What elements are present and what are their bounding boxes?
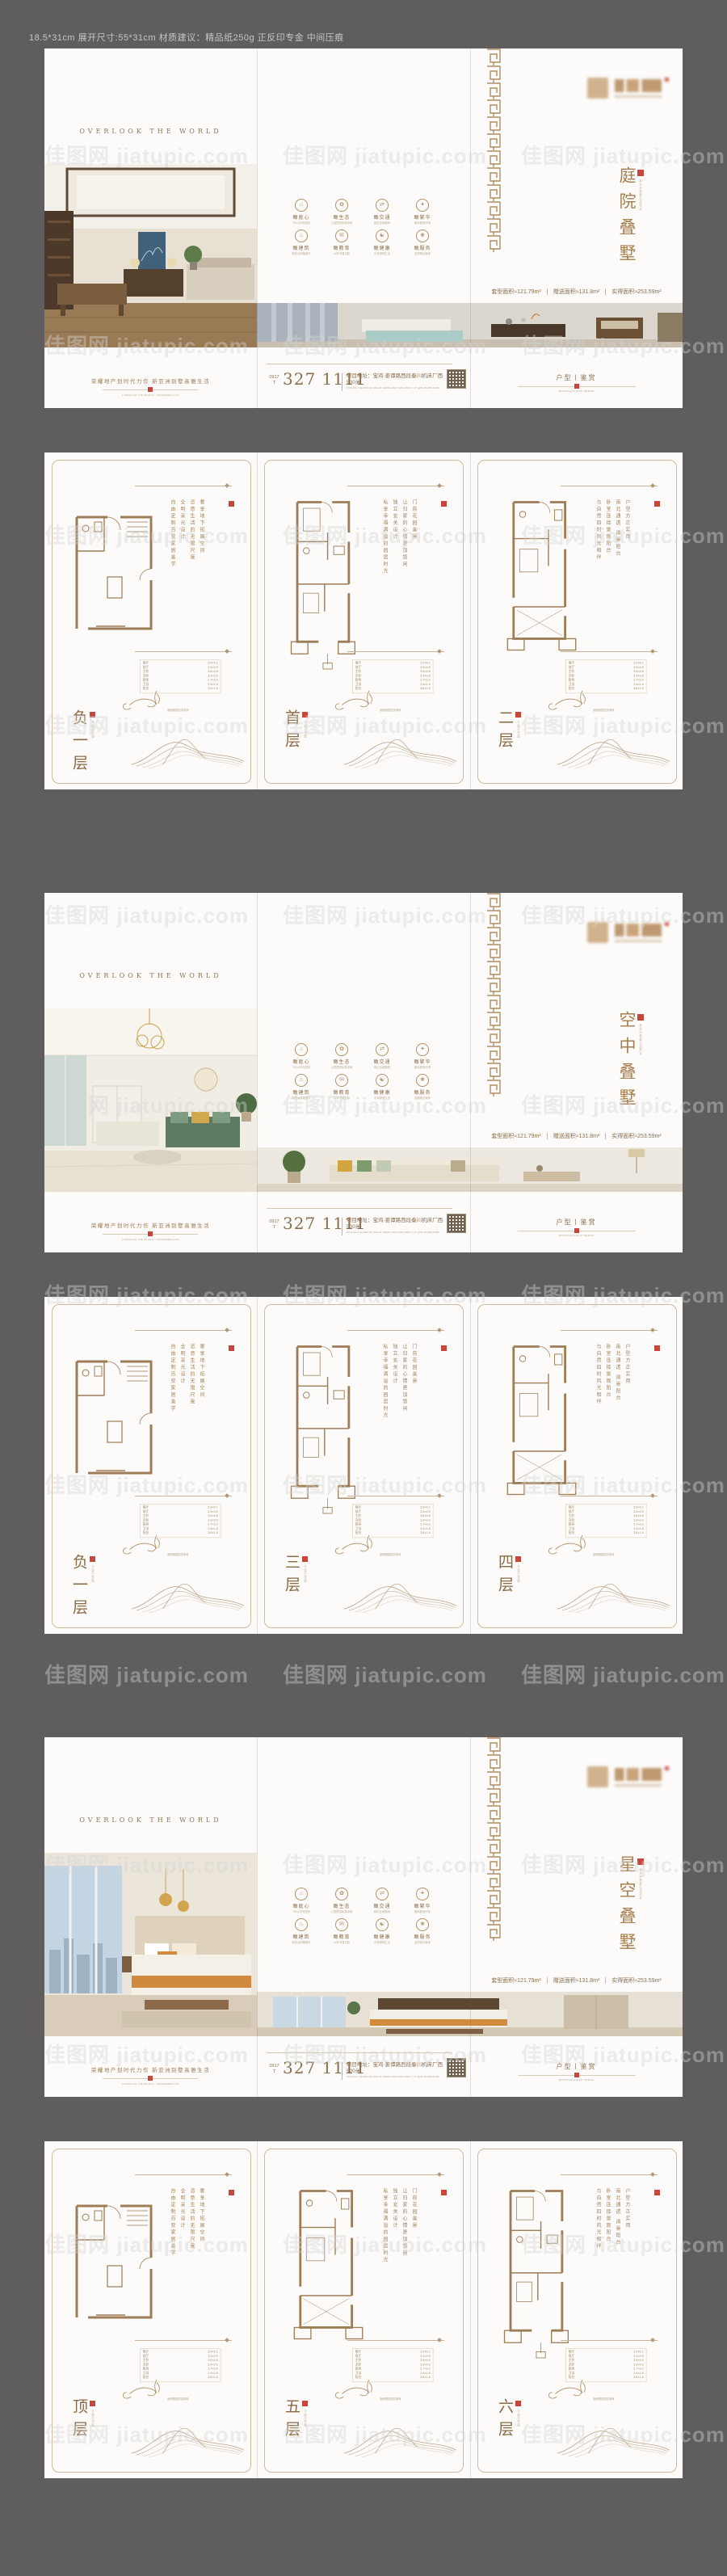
floorplan-spread: 奢享地下拓展空间恣意生活的无限尺度全明采光设计自由定制百变家居美学客厅3.9×5… xyxy=(44,1297,683,1634)
feature-label: 瞰建筑 xyxy=(281,1933,321,1940)
floor-label: 六层 xyxy=(494,2398,516,2476)
poem-seal xyxy=(229,2190,234,2195)
feature-sub: 公园里的私属领地 xyxy=(330,1909,353,1913)
feature-icon: ⌂ xyxy=(295,1888,308,1900)
feature-sub: 醇熟配套环绕 xyxy=(411,221,434,225)
footer-section-label: 户型丨鉴赏 xyxy=(470,1218,683,1227)
title-caption: 新亚洲叠墅生活范本 xyxy=(638,179,642,212)
area-separator xyxy=(605,1977,606,1984)
logo-red-dot xyxy=(665,1766,669,1770)
poem-column: 独立玄关设计 xyxy=(389,1344,399,1488)
footer-english: APPRECIATION OF HUXING xyxy=(518,1235,635,1237)
poem-column: 私享幸福满溢的园居时光 xyxy=(380,1344,389,1488)
feature-label: 瞰庭心 xyxy=(281,1058,321,1065)
bottom-rule xyxy=(135,1496,232,1496)
qr-code xyxy=(447,369,466,389)
watermark: 佳图网 jiatupic.com xyxy=(44,1659,249,1689)
panel-poem: 门前花园美景让归家的心情更加悠闲独立玄关设计私享幸福满溢的园居时光 xyxy=(380,1344,418,1488)
project-address-english: PROJECT ADDRESS: BAOJI JIANGTAN ROAD WES… xyxy=(347,1231,400,1234)
floor-label: 首层 xyxy=(281,709,303,787)
room-size: 3.6×1.5 xyxy=(420,1531,431,1535)
panel-poem: 户型方正实用南北通透 阔景阳台卧室连接景观阳台与自然四时风光相伴 xyxy=(593,499,632,643)
feature-sub: 乐享颐养生活 xyxy=(371,251,393,255)
poem-seal xyxy=(654,1345,660,1351)
poem-column: 南北通透 阔景阳台 xyxy=(612,1344,622,1488)
feature-icon: ✿ xyxy=(335,199,348,212)
overlook-heading: OVERLOOK THE WORLD xyxy=(44,1816,257,1824)
fold-line xyxy=(470,2141,471,2478)
cloud-motif xyxy=(548,1533,595,1555)
floor-caption: 平面示意图 xyxy=(303,1565,307,1583)
poem-column: 卧室连接景观阳台 xyxy=(603,499,612,643)
fold-line xyxy=(257,1737,258,2097)
room-size: 3.6×1.5 xyxy=(420,687,431,691)
top-rule xyxy=(135,486,232,486)
bottom-rule xyxy=(347,1496,444,1496)
interior-photo xyxy=(44,1853,257,2036)
bottom-rule xyxy=(135,651,232,652)
floorplan-drawing xyxy=(61,2183,166,2341)
feature-sub: 750㎡中央园林 xyxy=(290,1065,313,1069)
contact-separator xyxy=(342,2062,342,2080)
phone-area-code: 0917T xyxy=(268,375,280,386)
phone-t-line: T xyxy=(268,2069,280,2075)
panel-poem: 户型方正实用南北通透 阔景阳台卧室连接景观阳台与自然四时风光相伴 xyxy=(593,2188,632,2332)
feature-icon: ❀ xyxy=(416,1918,429,1931)
feature-item: ⇄瞰交通畅达全城路网 xyxy=(362,1888,402,1917)
top-rule xyxy=(561,2174,658,2175)
room-size: 3.6×1.5 xyxy=(208,1531,218,1535)
feature-icon: ♨ xyxy=(295,229,308,242)
bottom-rule xyxy=(135,2340,232,2341)
feature-item: ♨瞰建筑新亚洲风格美学 xyxy=(281,1918,321,1947)
footer-seal xyxy=(574,2073,579,2077)
footer-seal xyxy=(574,384,579,389)
feature-sub: 新亚洲风格美学 xyxy=(290,251,313,255)
feature-label: 瞰教育 xyxy=(321,244,362,251)
area-segment: 套型面积≈121.79m² xyxy=(491,288,540,296)
area-info-row: 套型面积≈121.79m²赠送面积≈131.8m²实得面积≈253.59m² xyxy=(470,1132,683,1140)
poem-column: 南北通透 阔景阳台 xyxy=(612,499,622,643)
floor-seal xyxy=(515,712,521,718)
watermark: 佳图网 jiatupic.com xyxy=(521,1659,725,1689)
project-address: 项目地址：宝鸡·姜谭路西段秦川机床厂西500米 xyxy=(347,1218,443,1231)
poem-seal xyxy=(441,2190,447,2195)
panel-poem: 奢享地下拓展空间恣意生活的无限尺度全明采光设计自由定制百变家居美学 xyxy=(167,499,206,643)
feature-item: ✉瞰教育12年书香文脉 xyxy=(321,1074,362,1103)
interior-photo xyxy=(44,1008,257,1192)
feature-icon: ♨ xyxy=(295,1918,308,1931)
poem-column: 私享幸福满溢的园居时光 xyxy=(380,2188,389,2332)
title-seal xyxy=(637,1858,644,1865)
poem-column: 与自然四时风光相伴 xyxy=(593,499,603,643)
footer-section-label: 户型丨鉴赏 xyxy=(470,2062,683,2071)
feature-label: 瞰生态 xyxy=(321,1058,362,1065)
tagline-seal xyxy=(148,1231,153,1236)
title-seal xyxy=(637,1014,644,1021)
logo-subline xyxy=(615,1784,662,1787)
feature-icon: ☯ xyxy=(376,1918,389,1931)
feature-icon: ✉ xyxy=(335,229,348,242)
area-segment: 实得面积≈253.59m² xyxy=(611,1976,661,1985)
interior-photo xyxy=(44,164,257,347)
overlook-heading: OVERLOOK THE WORLD xyxy=(44,128,257,135)
floor-label: 负一层 xyxy=(69,709,90,787)
poem-column: 户型方正实用 xyxy=(622,1344,632,1488)
cover-title-vertical: 空中叠墅 xyxy=(615,1011,639,1132)
feature-label: 瞰服务 xyxy=(402,1088,443,1096)
room-size: 3.6×1.5 xyxy=(208,2376,218,2380)
feature-label: 瞰健康 xyxy=(362,244,402,251)
feature-item: ✿瞰生态公园里的私属领地 xyxy=(321,1888,362,1917)
mountain-art xyxy=(341,1564,458,1615)
fret-pattern-band xyxy=(485,893,502,1096)
tagline-english: OVERLOOK THE WORLD · HONORABLE LIFE xyxy=(92,1239,209,1241)
top-rule xyxy=(347,2174,444,2175)
feature-sub: 12年书香文脉 xyxy=(330,1096,353,1100)
fret-pattern-band xyxy=(485,1737,502,1941)
feature-item: ⇄瞰交通畅达全城路网 xyxy=(362,1043,402,1072)
floor-seal xyxy=(515,1556,521,1562)
area-segment: 实得面积≈253.59m² xyxy=(611,1132,661,1140)
mountain-art xyxy=(341,719,458,771)
fold-line xyxy=(470,893,471,1252)
cover-title-vertical: 庭院叠墅 xyxy=(615,166,639,288)
poem-column: 恣意生活的无限尺度 xyxy=(187,499,196,643)
title-caption: 新亚洲叠墅生活范本 xyxy=(638,1024,642,1056)
poem-column: 恣意生活的无限尺度 xyxy=(187,1344,196,1488)
panel-poem: 门前花园美景让归家的心情更加悠闲独立玄关设计私享幸福满溢的园居时光 xyxy=(380,499,418,643)
feature-icon: ⇄ xyxy=(376,1043,389,1056)
bottom-rule xyxy=(561,651,658,652)
feature-sub: 12年书香文脉 xyxy=(330,251,353,255)
floor-seal xyxy=(302,2401,308,2406)
feature-icon: ⇄ xyxy=(376,1888,389,1900)
cover-spread: OVERLOOK THE WORLD 荣耀地产划时代力作 新亚洲别墅高雅生活OV… xyxy=(44,1737,683,2097)
fold-line xyxy=(470,1737,471,2097)
poem-column: 奢享地下拓展空间 xyxy=(196,499,206,643)
poem-column: 全明采光设计 xyxy=(177,1344,187,1488)
poem-column: 门前花园美景 xyxy=(409,2188,418,2332)
feature-sub: 醇熟配套环绕 xyxy=(411,1909,434,1913)
feature-icon: ✉ xyxy=(335,1074,348,1087)
poem-seal xyxy=(229,1345,234,1351)
poem-column: 卧室连接景观阳台 xyxy=(603,2188,612,2332)
footer-section-label: 户型丨鉴赏 xyxy=(470,373,683,382)
feature-sub: 公园里的私属领地 xyxy=(330,1065,353,1069)
floor-caption: 平面示意图 xyxy=(90,2410,95,2427)
feature-label: 瞰繁华 xyxy=(402,213,443,221)
logo-subline xyxy=(615,940,662,942)
feature-label: 瞰繁华 xyxy=(402,1058,443,1065)
area-segment: 赠送面积≈131.8m² xyxy=(553,288,600,296)
area-separator xyxy=(605,1133,606,1139)
poem-column: 门前花园美景 xyxy=(409,499,418,643)
top-rule xyxy=(347,486,444,486)
phone-code-line: 0917 xyxy=(268,375,280,381)
mountain-art xyxy=(128,719,246,771)
feature-item: ⌂瞰庭心750㎡中央园林 xyxy=(281,199,321,228)
project-address: 项目地址：宝鸡·姜谭路西段秦川机床厂西500米 xyxy=(347,373,443,386)
area-segment: 实得面积≈253.59m² xyxy=(611,288,661,296)
feature-item: ✦瞰繁华醇熟配套环绕 xyxy=(402,199,443,228)
feature-item: ☯瞰健康乐享颐养生活 xyxy=(362,1918,402,1947)
floorplan-spread: 奢享地下拓展空间恣意生活的无限尺度全明采光设计自由定制百变家居美学客厅3.9×5… xyxy=(44,2141,683,2478)
feature-icon: ⇄ xyxy=(376,199,389,212)
feature-sub: 品质物业管家 xyxy=(411,251,434,255)
phone-area-code: 0917T xyxy=(268,1219,280,1231)
feature-item: ❀瞰服务品质物业管家 xyxy=(402,229,443,259)
feature-item: ⌂瞰庭心750㎡中央园林 xyxy=(281,1043,321,1072)
poem-column: 自由定制百变家居美学 xyxy=(167,2188,177,2332)
area-separator xyxy=(605,288,606,295)
feature-icon: ✿ xyxy=(335,1043,348,1056)
floorplan-drawing xyxy=(273,495,372,671)
floorplan-drawing xyxy=(273,1339,372,1515)
fold-line xyxy=(257,2141,258,2478)
floorplan-drawing xyxy=(486,2183,585,2359)
project-address-english: PROJECT ADDRESS: BAOJI JIANGTAN ROAD WES… xyxy=(347,387,400,389)
poem-column: 恣意生活的无限尺度 xyxy=(187,2188,196,2332)
feature-label: 瞰建筑 xyxy=(281,1088,321,1096)
phone-t-line: T xyxy=(268,381,280,386)
fold-line xyxy=(470,452,471,789)
cloud-motif xyxy=(334,688,381,711)
feature-label: 瞰交通 xyxy=(362,213,402,221)
poem-column: 独立玄关设计 xyxy=(389,499,399,643)
mountain-art xyxy=(554,719,671,771)
feature-sub: 新亚洲风格美学 xyxy=(290,1096,313,1100)
panel-poem: 奢享地下拓展空间恣意生活的无限尺度全明采光设计自由定制百变家居美学 xyxy=(167,2188,206,2332)
brand-logo-blurred xyxy=(587,1765,683,1792)
floor-caption: 平面示意图 xyxy=(90,1565,95,1583)
mountain-art xyxy=(341,2408,458,2460)
feature-icon: ⌂ xyxy=(295,199,308,212)
bottom-rule xyxy=(347,2340,444,2341)
qr-code xyxy=(447,1214,466,1233)
floorplan-drawing xyxy=(486,1339,585,1502)
phone-t-line: T xyxy=(268,1225,280,1231)
floor-seal xyxy=(302,712,308,718)
feature-sub: 750㎡中央园林 xyxy=(290,221,313,225)
fold-line xyxy=(470,1297,471,1634)
tagline-english: OVERLOOK THE WORLD · HONORABLE LIFE xyxy=(92,394,209,397)
feature-sub: 畅达全城路网 xyxy=(371,1909,393,1913)
floor-label: 五层 xyxy=(281,2398,303,2476)
footer-seal xyxy=(574,1228,579,1233)
feature-item: ✉瞰教育12年书香文脉 xyxy=(321,1918,362,1947)
contact-divider xyxy=(267,364,452,364)
feature-sub: 750㎡中央园林 xyxy=(290,1909,313,1913)
brand-tagline: 荣耀地产划时代力作 新亚洲别墅高雅生活 xyxy=(44,1221,257,1229)
cover-spread: OVERLOOK THE WORLD 荣耀地产划时代力作 新亚洲别墅高雅生活OV… xyxy=(44,893,683,1252)
poem-column: 让归家的心情更加悠闲 xyxy=(399,1344,409,1488)
floorplan-drawing xyxy=(61,1339,166,1496)
project-address: 项目地址：宝鸡·姜谭路西段秦川机床厂西500米 xyxy=(347,2062,443,2075)
logo-mark xyxy=(587,1766,608,1787)
panel-poem: 奢享地下拓展空间恣意生活的无限尺度全明采光设计自由定制百变家居美学 xyxy=(167,1344,206,1488)
feature-icon: ✦ xyxy=(416,1888,429,1900)
feature-item: ✦瞰繁华醇熟配套环绕 xyxy=(402,1043,443,1072)
feature-label: 瞰建筑 xyxy=(281,244,321,251)
cloud-motif xyxy=(122,688,169,711)
feature-item: ✦瞰繁华醇熟配套环绕 xyxy=(402,1888,443,1917)
poem-column: 独立玄关设计 xyxy=(389,2188,399,2332)
logo-red-dot xyxy=(665,922,669,926)
poem-column: 私享幸福满溢的园居时光 xyxy=(380,499,389,643)
feature-sub: 12年书香文脉 xyxy=(330,1940,353,1944)
poem-column: 让归家的心情更加悠闲 xyxy=(399,499,409,643)
feature-sub: 醇熟配套环绕 xyxy=(411,1065,434,1069)
cloud-motif xyxy=(548,688,595,711)
feature-icon: ❀ xyxy=(416,1074,429,1087)
bottom-rule xyxy=(561,1496,658,1496)
feature-label: 瞰教育 xyxy=(321,1933,362,1940)
feature-item: ☯瞰健康乐享颐养生活 xyxy=(362,1074,402,1103)
contact-separator xyxy=(342,373,342,391)
mountain-art xyxy=(554,2408,671,2460)
feature-sub: 畅达全城路网 xyxy=(371,221,393,225)
floor-label: 二层 xyxy=(494,709,516,787)
watermark: 佳图网 jiatupic.com xyxy=(283,1659,487,1689)
top-rule xyxy=(135,1330,232,1331)
cloud-motif xyxy=(334,2377,381,2400)
logo-mark xyxy=(587,78,608,99)
panel-poem: 户型方正实用南北通透 阔景阳台卧室连接景观阳台与自然四时风光相伴 xyxy=(593,1344,632,1488)
floor-caption: 平面示意图 xyxy=(303,721,307,739)
floor-label: 四层 xyxy=(494,1554,516,1631)
feature-item: ♨瞰建筑新亚洲风格美学 xyxy=(281,229,321,259)
feature-icon: ☯ xyxy=(376,1074,389,1087)
floor-seal xyxy=(90,2401,95,2406)
room-size: 3.6×1.5 xyxy=(633,2376,644,2380)
area-segment: 套型面积≈121.79m² xyxy=(491,1132,540,1140)
footer-english: APPRECIATION OF HUXING xyxy=(518,390,635,393)
room-size: 3.6×1.5 xyxy=(633,1531,644,1535)
top-rule xyxy=(347,1330,444,1331)
fold-line xyxy=(470,48,471,408)
poem-seal xyxy=(441,1345,447,1351)
poem-column: 全明采光设计 xyxy=(177,2188,187,2332)
floor-caption: 平面示意图 xyxy=(516,721,520,739)
poem-seal xyxy=(654,2190,660,2195)
poem-column: 与自然四时风光相伴 xyxy=(593,2188,603,2332)
footer-english: APPRECIATION OF HUXING xyxy=(518,2079,635,2081)
feature-item: ⇄瞰交通畅达全城路网 xyxy=(362,199,402,228)
poem-column: 门前花园美景 xyxy=(409,1344,418,1488)
tagline-seal xyxy=(148,387,153,392)
mountain-art xyxy=(128,2408,246,2460)
poem-column: 自由定制百变家居美学 xyxy=(167,1344,177,1488)
feature-label: 瞰服务 xyxy=(402,244,443,251)
floor-caption: 平面示意图 xyxy=(90,721,95,739)
poem-column: 与自然四时风光相伴 xyxy=(593,1344,603,1488)
floor-label: 负一层 xyxy=(69,1554,90,1631)
feature-icon: ✦ xyxy=(416,1043,429,1056)
floor-seal xyxy=(90,1556,95,1562)
tagline-english: OVERLOOK THE WORLD · HONORABLE LIFE xyxy=(92,2083,209,2086)
panel-poem: 门前花园美景让归家的心情更加悠闲独立玄关设计私享幸福满溢的园居时光 xyxy=(380,2188,418,2332)
brand-logo-blurred xyxy=(587,76,683,103)
poem-column: 自由定制百变家居美学 xyxy=(167,499,177,643)
cloud-motif xyxy=(122,2377,169,2400)
fold-line xyxy=(257,452,258,789)
cloud-motif xyxy=(548,2377,595,2400)
floor-seal xyxy=(302,1556,308,1562)
overlook-heading: OVERLOOK THE WORLD xyxy=(44,972,257,979)
phone-area-code: 0917T xyxy=(268,2064,280,2075)
cloud-motif xyxy=(334,1533,381,1555)
feature-item: ❀瞰服务品质物业管家 xyxy=(402,1074,443,1103)
feature-item: ✿瞰生态公园里的私属领地 xyxy=(321,1043,362,1072)
title-caption: 新亚洲叠墅生活范本 xyxy=(638,1868,642,1900)
feature-icon: ✦ xyxy=(416,199,429,212)
poem-column: 奢享地下拓展空间 xyxy=(196,1344,206,1488)
brochure-design-preview: 18.5*31cm 展开尺寸:55*31cm 材质建议：精品纸250g 正反印专… xyxy=(0,0,727,2576)
tagline-seal xyxy=(148,2076,153,2081)
poem-column: 卧室连接景观阳台 xyxy=(603,1344,612,1488)
feature-label: 瞰庭心 xyxy=(281,213,321,221)
fold-line xyxy=(257,48,258,408)
feature-sub: 公园里的私属领地 xyxy=(330,221,353,225)
feature-label: 瞰生态 xyxy=(321,1902,362,1909)
logo-wordmark xyxy=(615,1768,662,1781)
feature-sub: 新亚洲风格美学 xyxy=(290,1940,313,1944)
feature-item: ♨瞰建筑新亚洲风格美学 xyxy=(281,1074,321,1103)
area-separator xyxy=(547,1133,548,1139)
mountain-art xyxy=(554,1564,671,1615)
feature-label: 瞰健康 xyxy=(362,1933,402,1940)
feature-label: 瞰服务 xyxy=(402,1933,443,1940)
print-spec-note: 18.5*31cm 展开尺寸:55*31cm 材质建议：精品纸250g 正反印专… xyxy=(29,31,344,44)
poem-seal xyxy=(229,501,234,507)
title-seal xyxy=(637,170,644,176)
feature-label: 瞰繁华 xyxy=(402,1902,443,1909)
top-rule xyxy=(561,1330,658,1331)
poem-column: 让归家的心情更加悠闲 xyxy=(399,2188,409,2332)
qr-code xyxy=(447,2058,466,2077)
logo-red-dot xyxy=(665,78,669,82)
logo-wordmark xyxy=(615,924,662,937)
feature-label: 瞰交通 xyxy=(362,1902,402,1909)
feature-item: ☯瞰健康乐享颐养生活 xyxy=(362,229,402,259)
poem-column: 全明采光设计 xyxy=(177,499,187,643)
floor-caption: 平面示意图 xyxy=(303,2410,307,2427)
fret-pattern-band xyxy=(485,48,502,252)
room-size: 3.6×1.5 xyxy=(420,2376,431,2380)
area-info-row: 套型面积≈121.79m²赠送面积≈131.8m²实得面积≈253.59m² xyxy=(470,288,683,296)
area-segment: 赠送面积≈131.8m² xyxy=(553,1132,600,1140)
floor-seal xyxy=(90,712,95,718)
top-rule xyxy=(561,486,658,486)
feature-icon: ✿ xyxy=(335,1888,348,1900)
contact-divider xyxy=(267,2052,452,2053)
contact-divider xyxy=(267,1208,452,1209)
feature-item: ❀瞰服务品质物业管家 xyxy=(402,1918,443,1947)
floor-seal xyxy=(515,2401,521,2406)
fold-line xyxy=(257,893,258,1252)
phone-code-line: 0917 xyxy=(268,1219,280,1225)
poem-column: 南北通透 阔景阳台 xyxy=(612,2188,622,2332)
feature-item: ✉瞰教育12年书香文脉 xyxy=(321,229,362,259)
logo-wordmark xyxy=(615,79,662,92)
bottom-rule xyxy=(347,651,444,652)
area-segment: 赠送面积≈131.8m² xyxy=(553,1976,600,1985)
feature-icon: ✉ xyxy=(335,1918,348,1931)
poem-seal xyxy=(441,501,447,507)
poem-seal xyxy=(654,501,660,507)
floorplan-spread: 奢享地下拓展空间恣意生活的无限尺度全明采光设计自由定制百变家居美学客厅3.9×5… xyxy=(44,452,683,789)
